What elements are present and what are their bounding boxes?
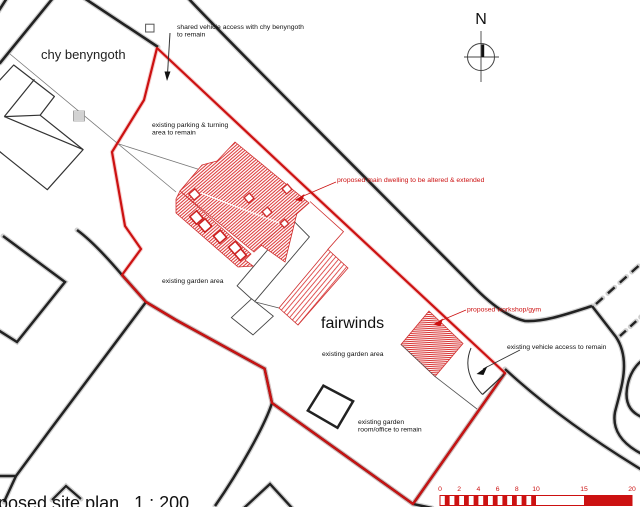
- svg-text:chy benyngoth: chy benyngoth: [41, 47, 126, 62]
- svg-text:2: 2: [457, 486, 461, 493]
- svg-text:15: 15: [580, 486, 588, 493]
- svg-text:room/office to remain: room/office to remain: [358, 427, 422, 434]
- svg-text:existing garden area: existing garden area: [322, 351, 384, 358]
- svg-text:proposed workshop/gym: proposed workshop/gym: [467, 307, 541, 314]
- svg-text:20: 20: [628, 486, 636, 493]
- svg-text:fairwinds: fairwinds: [321, 315, 384, 332]
- svg-text:6: 6: [496, 486, 500, 493]
- svg-text:existing parking & turning: existing parking & turning: [152, 122, 229, 129]
- svg-text:4: 4: [477, 486, 481, 493]
- svg-text:existing garden: existing garden: [358, 419, 404, 426]
- svg-text:existing vehicle access to rem: existing vehicle access to remain: [507, 344, 607, 351]
- svg-text:existing garden area: existing garden area: [162, 278, 224, 285]
- svg-text:10: 10: [532, 486, 540, 493]
- svg-text:to remain: to remain: [177, 32, 206, 39]
- svg-text:0: 0: [438, 486, 442, 493]
- svg-text:shared vehicle access with chy: shared vehicle access with chy benyngoth: [177, 24, 304, 31]
- svg-text:8: 8: [515, 486, 519, 493]
- svg-text:N: N: [475, 11, 487, 28]
- svg-text:proposed main dwelling to be a: proposed main dwelling to be altered & e…: [337, 177, 485, 184]
- svg-text:area to remain: area to remain: [152, 130, 196, 137]
- svg-text:proposed site plan 1 : 200: proposed site plan 1 : 200: [0, 493, 189, 507]
